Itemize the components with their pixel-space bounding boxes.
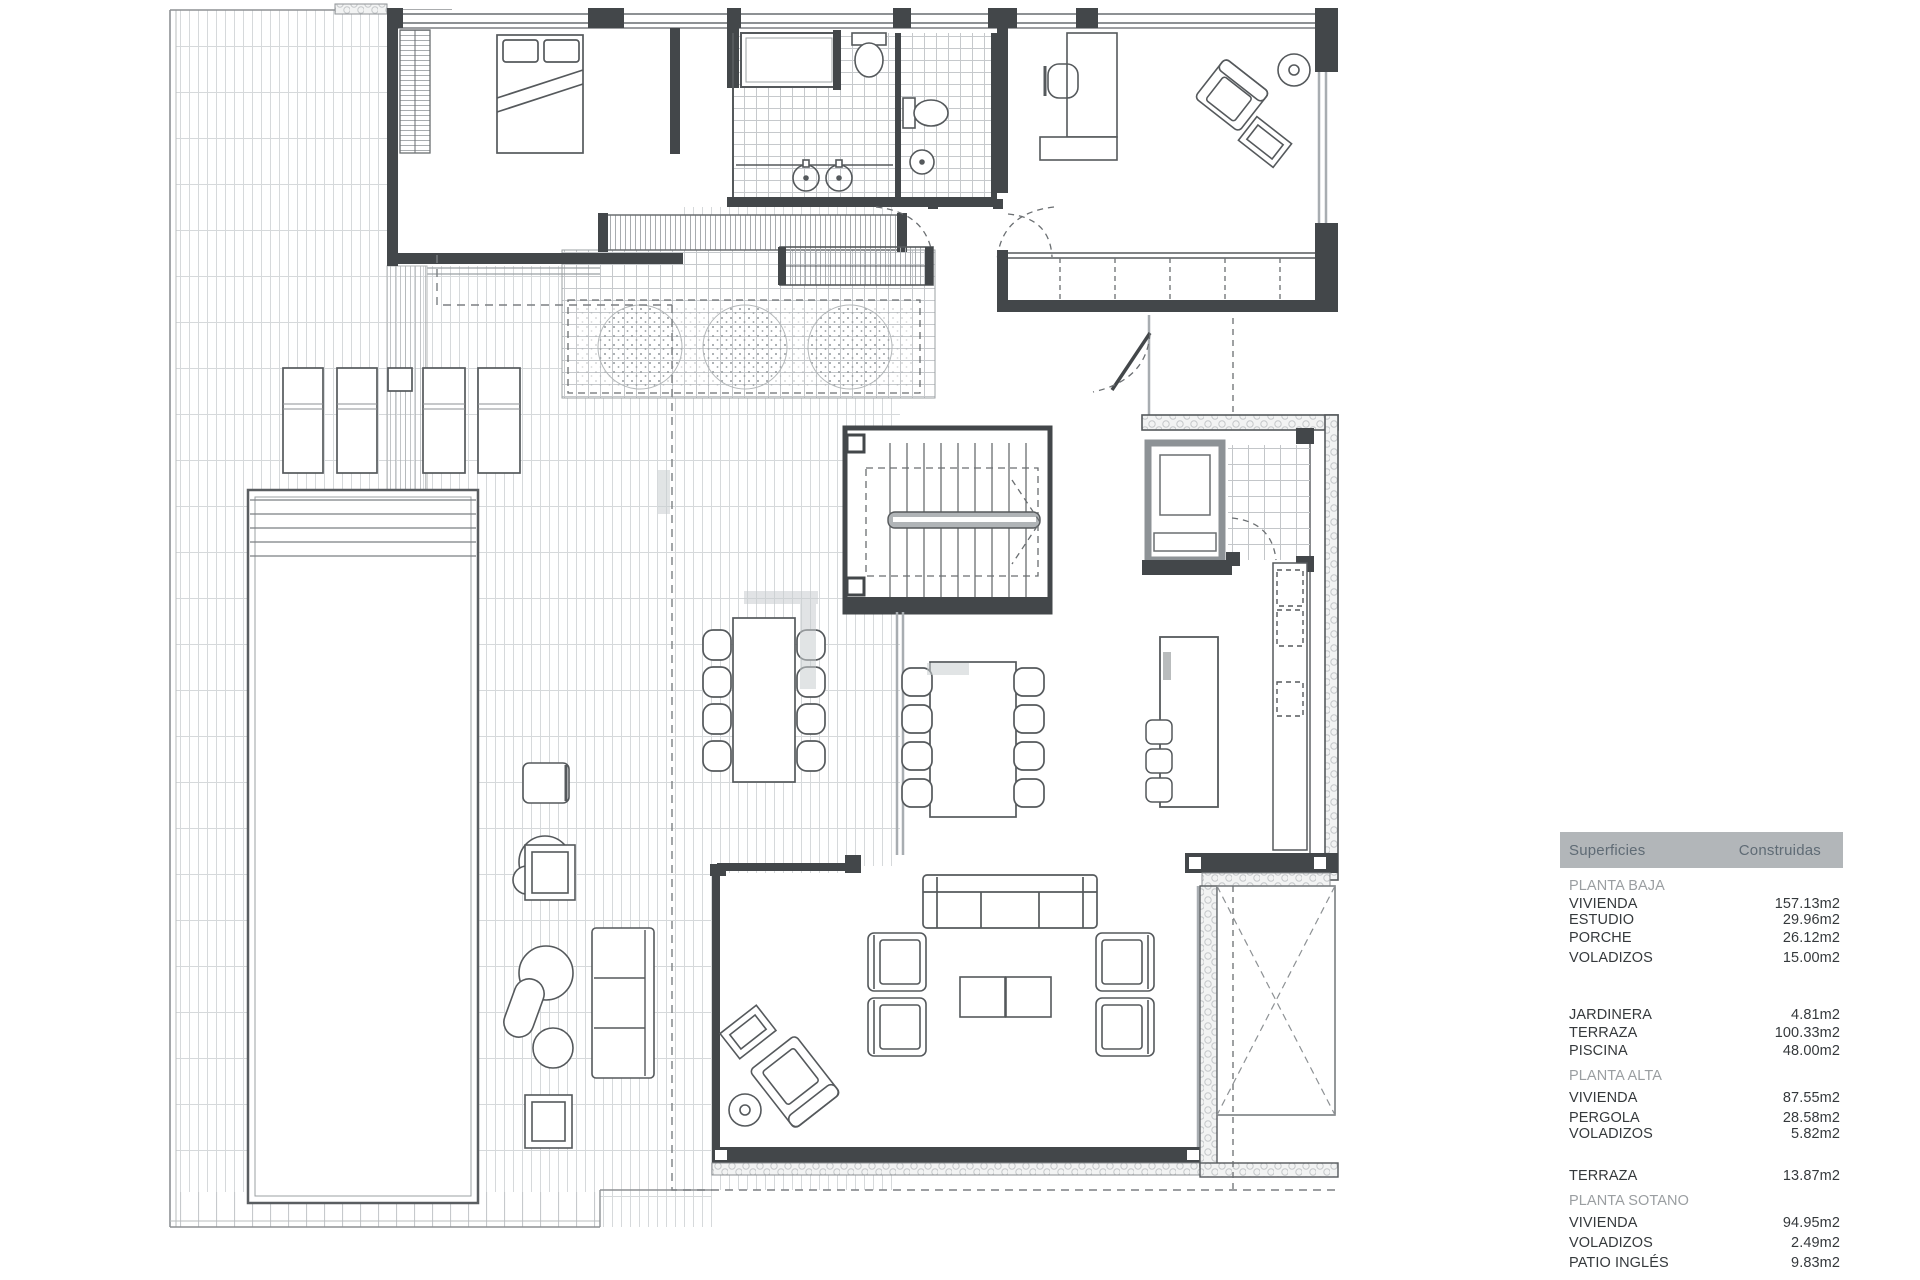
row-value: 157.13m2	[1775, 896, 1840, 912]
row-label: TERRAZA	[1569, 1025, 1637, 1041]
row-value: 28.58m2	[1783, 1110, 1840, 1126]
row-label: PISCINA	[1569, 1043, 1628, 1059]
hall-wardrobe	[778, 247, 933, 285]
table-row: VOLADIZOS2.49m2	[1569, 1235, 1840, 1251]
row-value: 94.95m2	[1783, 1215, 1840, 1231]
row-label: PERGOLA	[1569, 1110, 1640, 1126]
table-row: PORCHE26.12m2	[1569, 930, 1840, 946]
row-label: PORCHE	[1569, 930, 1632, 946]
staircase	[845, 428, 1050, 612]
surfaces-header-col2: Construidas	[1739, 842, 1821, 859]
surfaces-table: Superficies Construidas PLANTA BAJAVIVIE…	[1560, 832, 1843, 1271]
shower	[741, 30, 841, 90]
bed	[497, 35, 583, 153]
row-label: PLANTA SOTANO	[1569, 1193, 1689, 1209]
row-value: 15.00m2	[1783, 950, 1840, 966]
row-label: JARDINERA	[1569, 1007, 1652, 1023]
store-room	[1148, 443, 1222, 560]
row-label: VOLADIZOS	[1569, 950, 1653, 966]
table-row: PISCINA48.00m2	[1569, 1043, 1840, 1059]
table-row: ESTUDIO29.96m2	[1569, 912, 1840, 928]
table-row: VIVIENDA157.13m2	[1569, 896, 1840, 912]
planter-jardinera	[568, 300, 920, 393]
table-row: VIVIENDA87.55m2	[1569, 1090, 1840, 1106]
table-section-row: PLANTA ALTA	[1569, 1068, 1840, 1084]
table-row: VOLADIZOS5.82m2	[1569, 1126, 1840, 1142]
table-row: JARDINERA4.81m2	[1569, 1007, 1840, 1023]
table-row: VOLADIZOS15.00m2	[1569, 950, 1840, 966]
row-label: VIVIENDA	[1569, 1215, 1638, 1231]
wardrobe	[400, 30, 430, 153]
floorplan-page: Superficies Construidas PLANTA BAJAVIVIE…	[0, 0, 1920, 1280]
bar-stools	[1146, 720, 1172, 802]
row-value: 87.55m2	[1783, 1090, 1840, 1106]
handrail	[888, 512, 1040, 528]
surfaces-table-header: Superficies Construidas	[1560, 832, 1843, 868]
row-value: 9.83m2	[1791, 1255, 1840, 1271]
row-value: 48.00m2	[1783, 1043, 1840, 1059]
row-value: 26.12m2	[1783, 930, 1840, 946]
table-row: PATIO INGLÉS9.83m2	[1569, 1255, 1840, 1271]
table-row: PERGOLA28.58m2	[1569, 1110, 1840, 1126]
wc-room	[901, 33, 991, 197]
table-row: VIVIENDA94.95m2	[1569, 1215, 1840, 1231]
row-label: VIVIENDA	[1569, 1090, 1638, 1106]
row-value: 100.33m2	[1775, 1025, 1840, 1041]
row-label: VOLADIZOS	[1569, 1235, 1653, 1251]
coffee-table	[960, 977, 1051, 1017]
surfaces-header-col1: Superficies	[1569, 842, 1645, 859]
table-row: TERRAZA100.33m2	[1569, 1025, 1840, 1041]
row-label: PLANTA BAJA	[1569, 878, 1665, 894]
row-value: 13.87m2	[1783, 1168, 1840, 1184]
row-label: VOLADIZOS	[1569, 1126, 1653, 1142]
wc-sink	[910, 150, 934, 174]
row-value: 2.49m2	[1791, 1235, 1840, 1251]
surfaces-table-rows: PLANTA BAJAVIVIENDA157.13m2ESTUDIO29.96m…	[1560, 878, 1843, 1271]
row-value: 4.81m2	[1791, 1007, 1840, 1023]
table-row: TERRAZA13.87m2	[1569, 1168, 1840, 1184]
table-section-row: PLANTA SOTANO	[1569, 1193, 1840, 1209]
patio-pergola	[1200, 886, 1338, 1190]
swimming-pool	[248, 490, 478, 1203]
row-label: VIVIENDA	[1569, 896, 1638, 912]
toilet	[852, 33, 886, 77]
wc-toilet	[903, 98, 948, 128]
row-label: PLANTA ALTA	[1569, 1068, 1662, 1084]
row-value: 29.96m2	[1783, 912, 1840, 928]
row-label: ESTUDIO	[1569, 912, 1634, 928]
row-label: PATIO INGLÉS	[1569, 1255, 1669, 1271]
row-label: TERRAZA	[1569, 1168, 1637, 1184]
row-value: 5.82m2	[1791, 1126, 1840, 1142]
table-section-row: PLANTA BAJA	[1569, 878, 1840, 894]
sofa	[923, 875, 1097, 928]
